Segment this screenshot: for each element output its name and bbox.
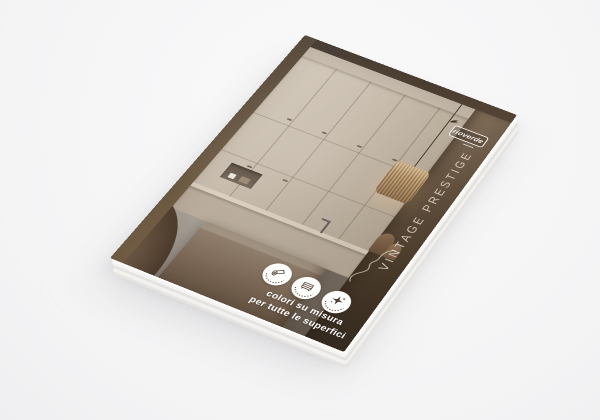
catalog-mockup-scene: rioverde VINTAGE PRESTIGE [0, 0, 600, 420]
